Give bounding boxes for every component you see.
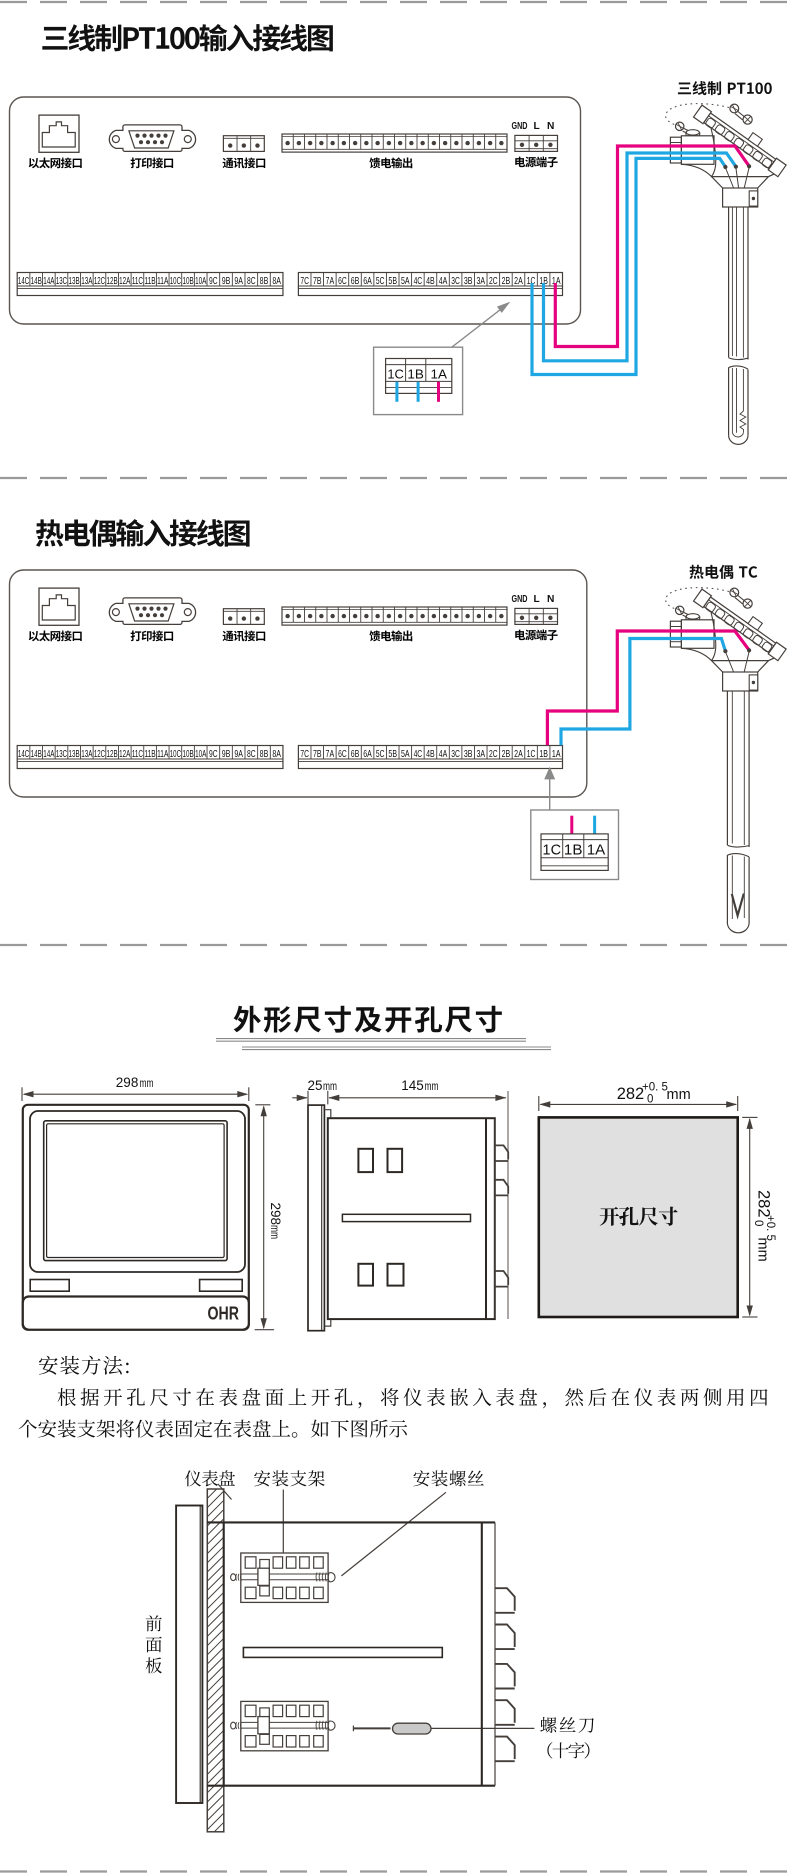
- svg-text:13B: 13B: [69, 276, 80, 287]
- svg-text:5A: 5A: [401, 749, 410, 760]
- svg-text:10B: 10B: [182, 749, 193, 760]
- svg-text:GND: GND: [512, 121, 528, 132]
- svg-text:14A: 14A: [43, 276, 54, 287]
- svg-text:9C: 9C: [209, 276, 218, 287]
- svg-text:10A: 10A: [195, 749, 206, 760]
- svg-text:10C: 10C: [170, 749, 182, 760]
- svg-text:10C: 10C: [170, 276, 182, 287]
- svg-text:L: L: [534, 594, 540, 605]
- svg-text:2C: 2C: [489, 276, 498, 287]
- svg-text:2A: 2A: [514, 749, 523, 760]
- svg-text:1A: 1A: [587, 842, 606, 858]
- svg-text:9B: 9B: [222, 749, 231, 760]
- svg-text:7B: 7B: [313, 749, 322, 760]
- svg-text:6A: 6A: [363, 749, 372, 760]
- svg-text:2C: 2C: [489, 749, 498, 760]
- svg-text:4B: 4B: [426, 749, 435, 760]
- svg-text:13A: 13A: [81, 749, 92, 760]
- svg-text:5C: 5C: [376, 749, 385, 760]
- svg-text:8B: 8B: [260, 749, 269, 760]
- svg-text:2A: 2A: [514, 276, 523, 287]
- svg-text:2B: 2B: [502, 749, 511, 760]
- svg-text:7A: 7A: [326, 276, 335, 287]
- svg-text:1C: 1C: [527, 749, 536, 760]
- svg-text:5A: 5A: [401, 276, 410, 287]
- svg-text:3A: 3A: [476, 276, 485, 287]
- svg-text:12A: 12A: [119, 276, 130, 287]
- svg-text:mm: mm: [425, 1079, 439, 1093]
- svg-text:N: N: [547, 121, 554, 132]
- svg-text:7C: 7C: [300, 276, 309, 287]
- svg-text:5C: 5C: [376, 276, 385, 287]
- svg-text:14C: 14C: [18, 276, 30, 287]
- svg-text:4C: 4C: [414, 276, 423, 287]
- svg-text:13C: 13C: [56, 749, 68, 760]
- svg-text:6C: 6C: [338, 276, 347, 287]
- svg-text:14C: 14C: [18, 749, 30, 760]
- svg-text:mm: mm: [323, 1079, 337, 1093]
- svg-text:14B: 14B: [31, 749, 42, 760]
- svg-text:11C: 11C: [132, 749, 144, 760]
- svg-text:3B: 3B: [464, 276, 473, 287]
- svg-text:mm: mm: [140, 1076, 154, 1090]
- svg-text:11C: 11C: [132, 276, 144, 287]
- svg-text:13B: 13B: [69, 749, 80, 760]
- svg-text:8C: 8C: [247, 749, 256, 760]
- svg-text:7B: 7B: [313, 276, 322, 287]
- svg-text:6B: 6B: [351, 276, 360, 287]
- svg-text:12C: 12C: [94, 749, 106, 760]
- svg-text:7A: 7A: [326, 749, 335, 760]
- svg-text:12A: 12A: [119, 749, 130, 760]
- svg-text:0: 0: [752, 1220, 764, 1226]
- svg-text:8A: 8A: [272, 749, 281, 760]
- svg-text:11A: 11A: [157, 749, 168, 760]
- svg-text:12B: 12B: [107, 276, 118, 287]
- svg-text:GND: GND: [512, 594, 528, 605]
- svg-text:OHR: OHR: [208, 1303, 240, 1324]
- svg-text:N: N: [547, 594, 554, 605]
- svg-text:282: 282: [755, 1190, 773, 1218]
- svg-text:8C: 8C: [247, 276, 256, 287]
- svg-text:3B: 3B: [464, 749, 473, 760]
- svg-text:5B: 5B: [388, 749, 397, 760]
- svg-text:+0. 5: +0. 5: [642, 1082, 668, 1094]
- svg-text:9A: 9A: [234, 276, 243, 287]
- svg-text:1B: 1B: [407, 367, 424, 382]
- svg-text:12C: 12C: [94, 276, 106, 287]
- svg-text:1A: 1A: [431, 367, 448, 382]
- svg-text:298: 298: [116, 1075, 139, 1090]
- svg-text:9C: 9C: [209, 749, 218, 760]
- svg-text:4B: 4B: [426, 276, 435, 287]
- svg-text:1C: 1C: [387, 367, 404, 382]
- svg-text:14B: 14B: [31, 276, 42, 287]
- svg-text:mm: mm: [667, 1087, 691, 1103]
- svg-text:13C: 13C: [56, 276, 68, 287]
- svg-text:mm: mm: [755, 1238, 771, 1262]
- svg-text:3A: 3A: [476, 749, 485, 760]
- svg-text:8B: 8B: [260, 276, 269, 287]
- svg-text:0: 0: [647, 1094, 653, 1106]
- svg-text:12B: 12B: [107, 749, 118, 760]
- svg-text:11B: 11B: [144, 276, 155, 287]
- svg-text:6A: 6A: [363, 276, 372, 287]
- svg-text:6B: 6B: [351, 749, 360, 760]
- svg-text:13A: 13A: [81, 276, 92, 287]
- svg-text:4A: 4A: [439, 749, 448, 760]
- svg-text:4A: 4A: [439, 276, 448, 287]
- svg-text:10A: 10A: [195, 276, 206, 287]
- svg-text:145: 145: [401, 1078, 424, 1093]
- svg-text:9A: 9A: [234, 749, 243, 760]
- svg-text:3C: 3C: [451, 749, 460, 760]
- svg-text:1A: 1A: [552, 749, 561, 760]
- svg-text:282: 282: [617, 1085, 645, 1103]
- svg-text:1B: 1B: [539, 749, 548, 760]
- svg-text:7C: 7C: [300, 749, 309, 760]
- svg-text:4C: 4C: [414, 749, 423, 760]
- svg-text:5B: 5B: [388, 276, 397, 287]
- svg-text:8A: 8A: [272, 276, 281, 287]
- svg-text:11A: 11A: [157, 276, 168, 287]
- svg-text:11B: 11B: [144, 749, 155, 760]
- svg-text:10B: 10B: [182, 276, 193, 287]
- svg-text:25: 25: [308, 1078, 323, 1093]
- svg-text:1B: 1B: [564, 842, 583, 858]
- svg-text:1C: 1C: [543, 842, 562, 858]
- svg-text:2B: 2B: [502, 276, 511, 287]
- svg-text:L: L: [534, 121, 540, 132]
- svg-text:6C: 6C: [338, 749, 347, 760]
- svg-text:3C: 3C: [451, 276, 460, 287]
- svg-text:14A: 14A: [43, 749, 54, 760]
- svg-text:9B: 9B: [222, 276, 231, 287]
- svg-text:298mm: 298mm: [268, 1203, 283, 1240]
